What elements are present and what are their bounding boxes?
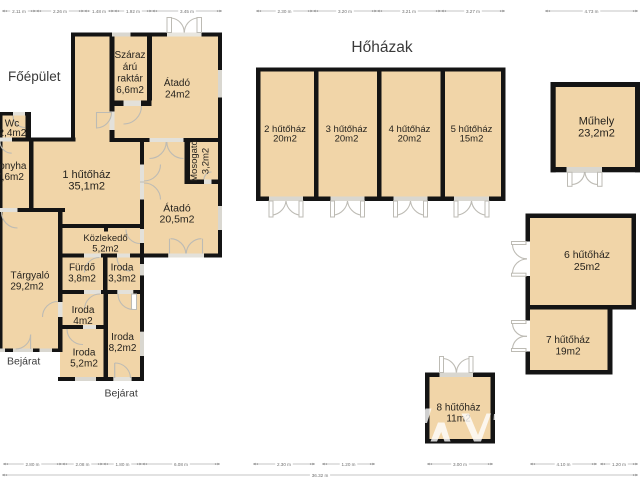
svg-text:7,6m2: 7,6m2 [0, 172, 24, 183]
svg-text:8,2m2: 8,2m2 [109, 343, 137, 354]
svg-text:1.48 m: 1.48 m [92, 9, 106, 14]
svg-text:Iroda: Iroda [111, 332, 134, 343]
svg-text:Átadó: Átadó [164, 76, 191, 89]
svg-text:2.30 m: 2.30 m [277, 462, 291, 467]
svg-text:Mosogató: Mosogató [189, 140, 200, 182]
svg-text:raktár: raktár [117, 74, 143, 85]
svg-text:8 hűtőház: 8 hűtőház [437, 403, 481, 414]
svg-text:4m2: 4m2 [73, 316, 93, 327]
svg-text:1 hűtőház: 1 hűtőház [62, 169, 110, 181]
svg-text:4.73 m: 4.73 m [584, 9, 598, 14]
svg-text:15m2: 15m2 [460, 133, 484, 144]
svg-text:35,1m2: 35,1m2 [68, 180, 105, 192]
svg-text:6 hűtőház: 6 hűtőház [564, 249, 610, 261]
svg-text:Hőházak: Hőházak [351, 39, 412, 56]
svg-text:2.80 m: 2.80 m [25, 462, 39, 467]
svg-text:Fürdő: Fürdő [69, 263, 96, 274]
svg-text:20m2: 20m2 [273, 133, 297, 144]
svg-text:19m2: 19m2 [555, 347, 580, 358]
svg-text:3.21 m: 3.21 m [402, 9, 416, 14]
svg-text:2.30 m: 2.30 m [277, 9, 291, 14]
svg-text:5,2m2: 5,2m2 [70, 359, 98, 370]
svg-text:3.27 m: 3.27 m [466, 9, 480, 14]
svg-text:6.08 m: 6.08 m [174, 462, 188, 467]
svg-text:Bejárat: Bejárat [7, 356, 40, 368]
svg-text:20m2: 20m2 [398, 133, 422, 144]
svg-text:2.08 m: 2.08 m [75, 462, 89, 467]
svg-text:2.11 m: 2.11 m [12, 9, 26, 14]
svg-text:1.92 m: 1.92 m [126, 9, 140, 14]
svg-text:3,2m2: 3,2m2 [201, 148, 212, 174]
svg-text:24m2: 24m2 [165, 89, 190, 100]
svg-text:1.80 m: 1.80 m [115, 462, 129, 467]
svg-text:20m2: 20m2 [335, 133, 359, 144]
svg-text:Konyha: Konyha [0, 161, 27, 172]
svg-text:Főépület: Főépület [8, 69, 61, 84]
svg-text:1.20 m: 1.20 m [341, 462, 355, 467]
svg-text:5,2m2: 5,2m2 [92, 244, 118, 255]
svg-text:4.10 m: 4.10 m [556, 462, 570, 467]
svg-text:árú: árú [123, 62, 137, 73]
svg-text:3,8m2: 3,8m2 [68, 274, 96, 285]
svg-text:3.20 m: 3.20 m [338, 9, 352, 14]
svg-text:Műhely: Műhely [579, 116, 615, 128]
svg-text:20,5m2: 20,5m2 [159, 214, 194, 226]
svg-text:2,4m2: 2,4m2 [0, 128, 27, 139]
svg-text:Bejárat: Bejárat [105, 388, 138, 400]
svg-text:Iroda: Iroda [73, 348, 96, 359]
svg-text:Közlekedő: Közlekedő [83, 233, 127, 244]
svg-text:23,2m2: 23,2m2 [578, 128, 615, 140]
svg-text:7 hűtőház: 7 hűtőház [546, 335, 590, 346]
svg-text:Tárgyaló: Tárgyaló [11, 270, 50, 281]
svg-text:1.20 m: 1.20 m [612, 462, 626, 467]
svg-text:36.32 m: 36.32 m [312, 473, 329, 478]
svg-text:29,2m2: 29,2m2 [10, 281, 44, 292]
svg-text:3,3m2: 3,3m2 [108, 274, 136, 285]
svg-text:3.45 m: 3.45 m [180, 9, 194, 14]
svg-text:2.26 m: 2.26 m [53, 9, 67, 14]
svg-text:6,6m2: 6,6m2 [116, 85, 144, 96]
svg-text:Iroda: Iroda [72, 305, 95, 316]
svg-text:25m2: 25m2 [574, 261, 600, 273]
svg-text:Száraz: Száraz [114, 50, 145, 61]
svg-text:Iroda: Iroda [111, 263, 134, 274]
svg-text:3.00 m: 3.00 m [453, 462, 467, 467]
